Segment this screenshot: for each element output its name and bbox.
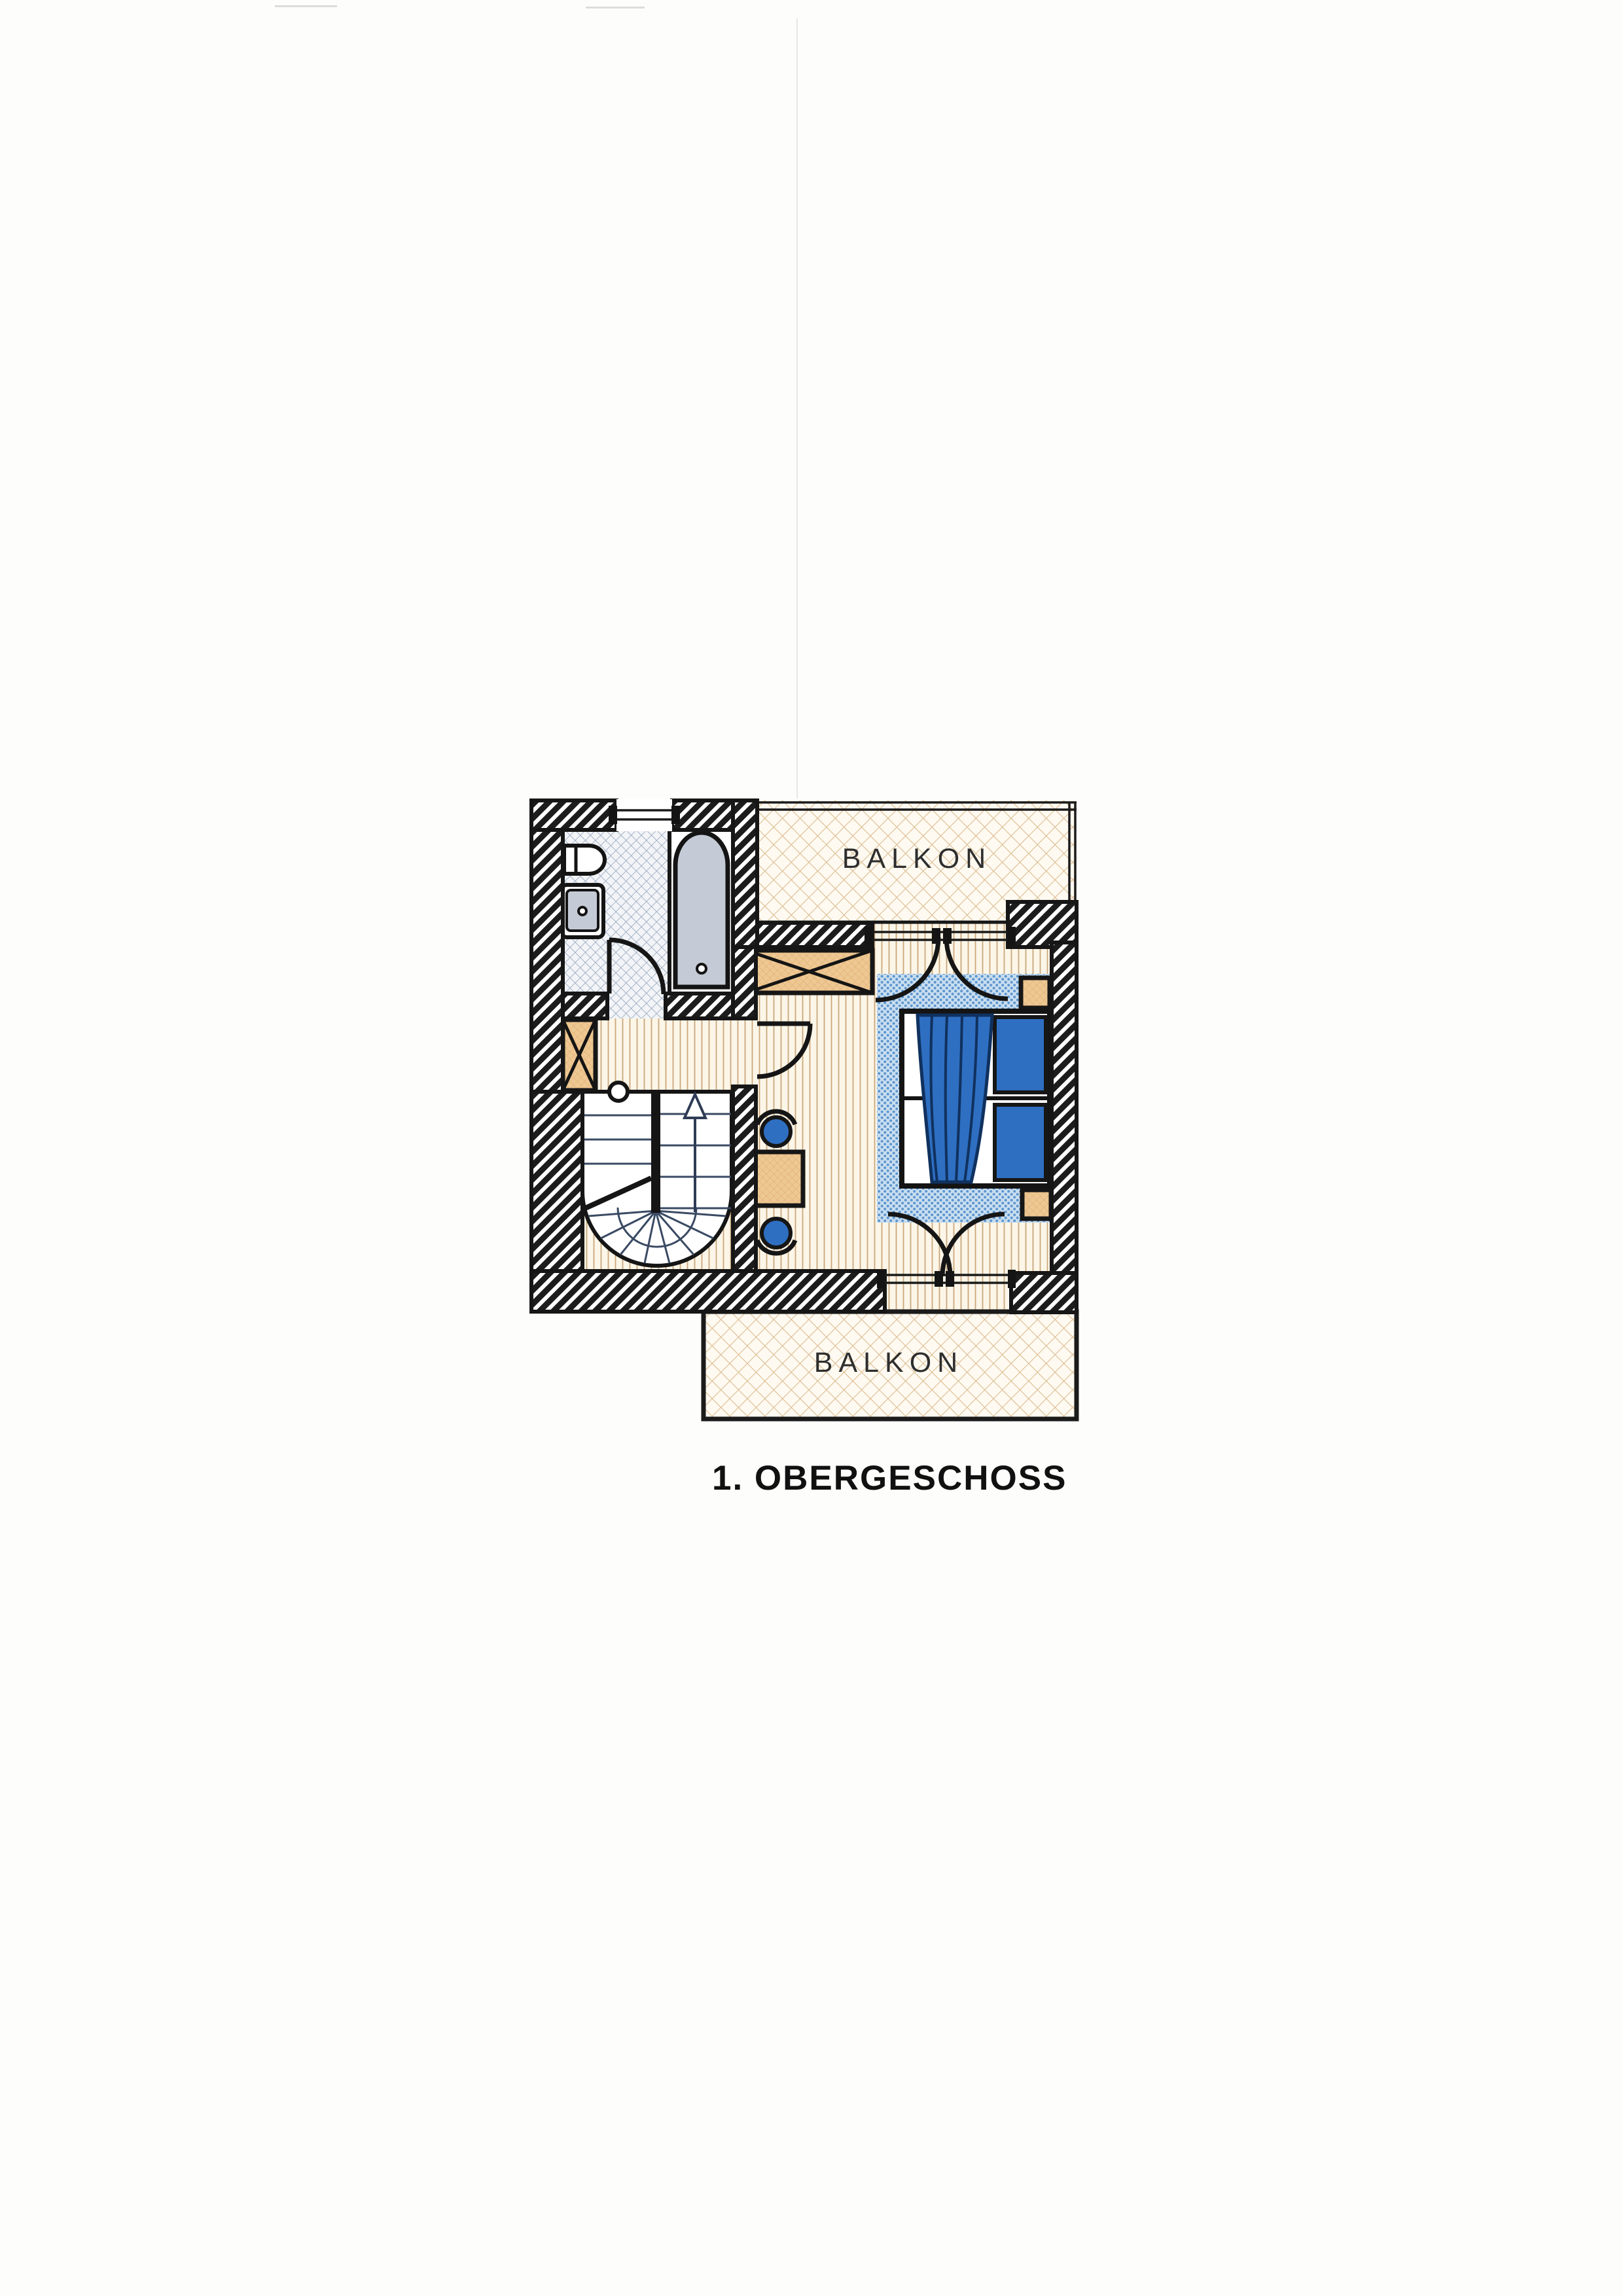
pillow — [995, 1017, 1046, 1092]
bathroom-window — [609, 799, 680, 831]
stair-spine-wall — [651, 1092, 660, 1213]
toilet — [564, 846, 605, 874]
wall-bedroom-bottom-right — [1011, 1273, 1077, 1312]
scan-mark — [275, 5, 337, 7]
wall-bottom — [531, 1271, 885, 1312]
wall-left-upper — [531, 800, 563, 1092]
chair — [762, 1117, 791, 1146]
bathtub-drain — [697, 964, 706, 973]
scan-mark — [586, 7, 645, 9]
wall-left-lower — [531, 1092, 582, 1275]
staircase — [582, 1083, 732, 1266]
wall-bath-bottom-left — [563, 994, 607, 1018]
window-opening — [616, 799, 672, 831]
bedroom-furnishings — [877, 974, 1052, 1223]
balcony-top-label: BALKON — [842, 843, 991, 875]
wall-partition-stub-top — [733, 947, 756, 1018]
nightstand-bottom — [1022, 1190, 1051, 1219]
stair-newel-post — [609, 1083, 628, 1101]
balcony-bottom-label: BALKON — [814, 1347, 963, 1379]
wall-top-right — [672, 800, 733, 830]
chair — [762, 1219, 791, 1247]
wall-bedroom-top-right — [1008, 902, 1077, 947]
wall-bath-bottom-right — [666, 994, 733, 1018]
plan-title: 1. OBERGESCHOSS — [712, 1458, 1067, 1498]
wall-top-left — [531, 800, 616, 830]
wall-living-top — [757, 923, 872, 947]
scanned-floor-plan-page: BALKON BALKON 1. OBERGESCHOSS — [0, 0, 1623, 2296]
scan-fold-line — [796, 18, 798, 798]
window-jamb — [671, 806, 680, 824]
wall-right — [1052, 942, 1077, 1312]
window-jamb — [609, 806, 617, 824]
nightstand-top — [1021, 978, 1050, 1008]
pillow — [995, 1105, 1046, 1180]
wall-column-bath-balcony — [733, 800, 757, 947]
sink-drain — [579, 907, 586, 915]
doorway-floor — [733, 1018, 757, 1086]
wall-partition-stub-bottom — [733, 1086, 756, 1271]
floor-plan-drawing — [0, 0, 1623, 2296]
